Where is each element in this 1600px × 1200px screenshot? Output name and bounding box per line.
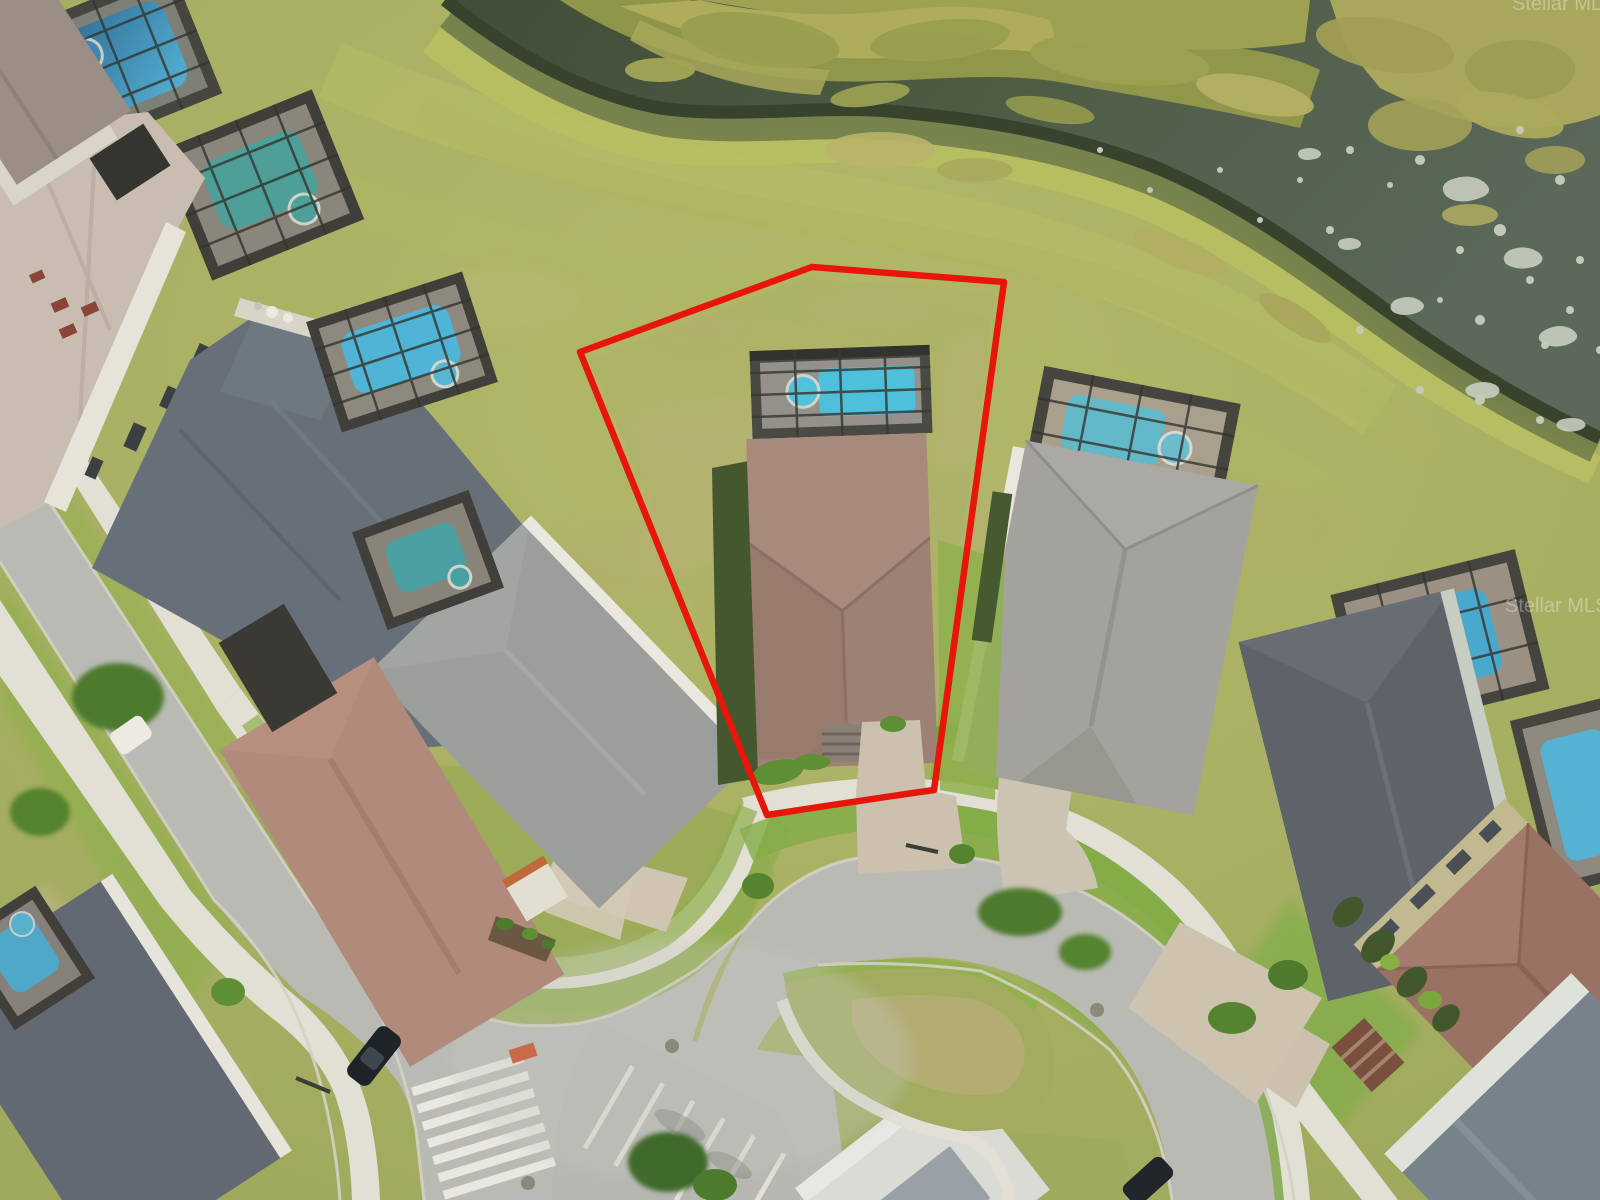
svg-text:Stellar MLS: Stellar MLS [1505,595,1600,617]
svg-text:Stellar MLS: Stellar MLS [1512,0,1600,15]
